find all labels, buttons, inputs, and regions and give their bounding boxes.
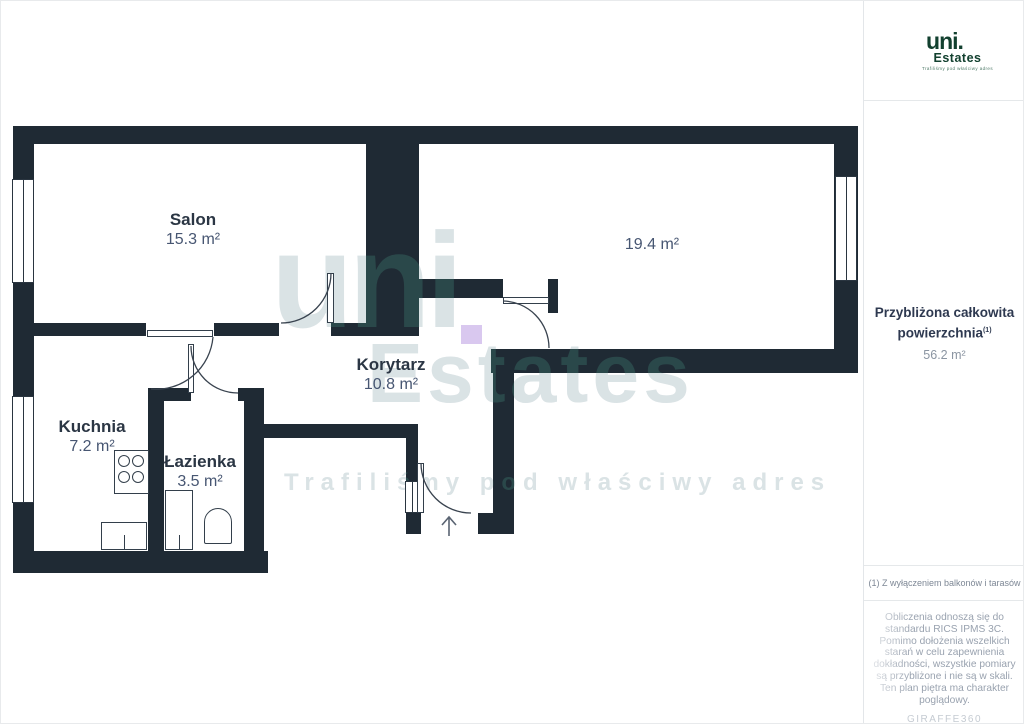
room-area: 19.4 m²	[625, 235, 679, 255]
room-area: 3.5 m²	[164, 472, 236, 492]
bathroom-door-arc	[191, 346, 238, 393]
salon-label: Salon 15.3 m²	[166, 210, 220, 250]
total-area-value: 56.2 m²	[923, 348, 965, 362]
logo-card: uni. Estates Trafiliśmy pod właściwy adr…	[864, 1, 1024, 101]
agency-logo: uni.	[926, 30, 963, 52]
disclaimer-fade	[864, 601, 912, 724]
bathroom-label: Łazienka 3.5 m²	[164, 452, 236, 492]
total-area-card: Przybliżona całkowita powierzchnia(1) 56…	[864, 101, 1024, 564]
room-name: Kuchnia	[58, 417, 125, 437]
disclaimer-card: Obliczenia odnoszą się do standardu RICS…	[864, 600, 1024, 724]
entry-door-arc	[421, 463, 471, 513]
room-name: Korytarz	[357, 355, 426, 375]
footnote-marker: (1)	[983, 327, 992, 334]
floorplan-page: uni Estates Trafiliśmy pod właściwy adre…	[0, 0, 1024, 724]
corridor-label: Korytarz 10.8 m²	[357, 355, 426, 395]
hall-door-arc	[151, 337, 213, 389]
agency-logo-sub: Estates	[934, 52, 982, 65]
bedroom-door-arc	[503, 301, 549, 348]
footnote-card: (1) Z wyłączeniem balkonów i tarasów	[864, 565, 1024, 600]
room-area: 10.8 m²	[357, 375, 426, 395]
kitchen-label: Kuchnia 7.2 m²	[58, 417, 125, 457]
room-name: Salon	[166, 210, 220, 230]
total-area-label-line1: Przybliżona całkowita	[875, 305, 1015, 320]
info-sidebar: uni. Estates Trafiliśmy pod właściwy adr…	[863, 1, 1024, 724]
entrance-arrow-icon	[442, 517, 456, 536]
door-arcs-overlay	[1, 1, 863, 724]
floorplan-canvas: uni Estates Trafiliśmy pod właściwy adre…	[1, 1, 863, 724]
total-area-label-line2: powierzchnia	[897, 325, 983, 340]
salon-door-arc	[281, 273, 331, 323]
bedroom-label: 19.4 m²	[625, 235, 679, 255]
agency-logo-tagline: Trafiliśmy pod właściwy adres	[922, 65, 993, 72]
footnote-text: (1) Z wyłączeniem balkonów i tarasów	[868, 578, 1020, 588]
room-area: 15.3 m²	[166, 230, 220, 250]
total-area-label: Przybliżona całkowita powierzchnia(1)	[875, 304, 1015, 343]
room-area: 7.2 m²	[58, 437, 125, 457]
room-name: Łazienka	[164, 452, 236, 472]
